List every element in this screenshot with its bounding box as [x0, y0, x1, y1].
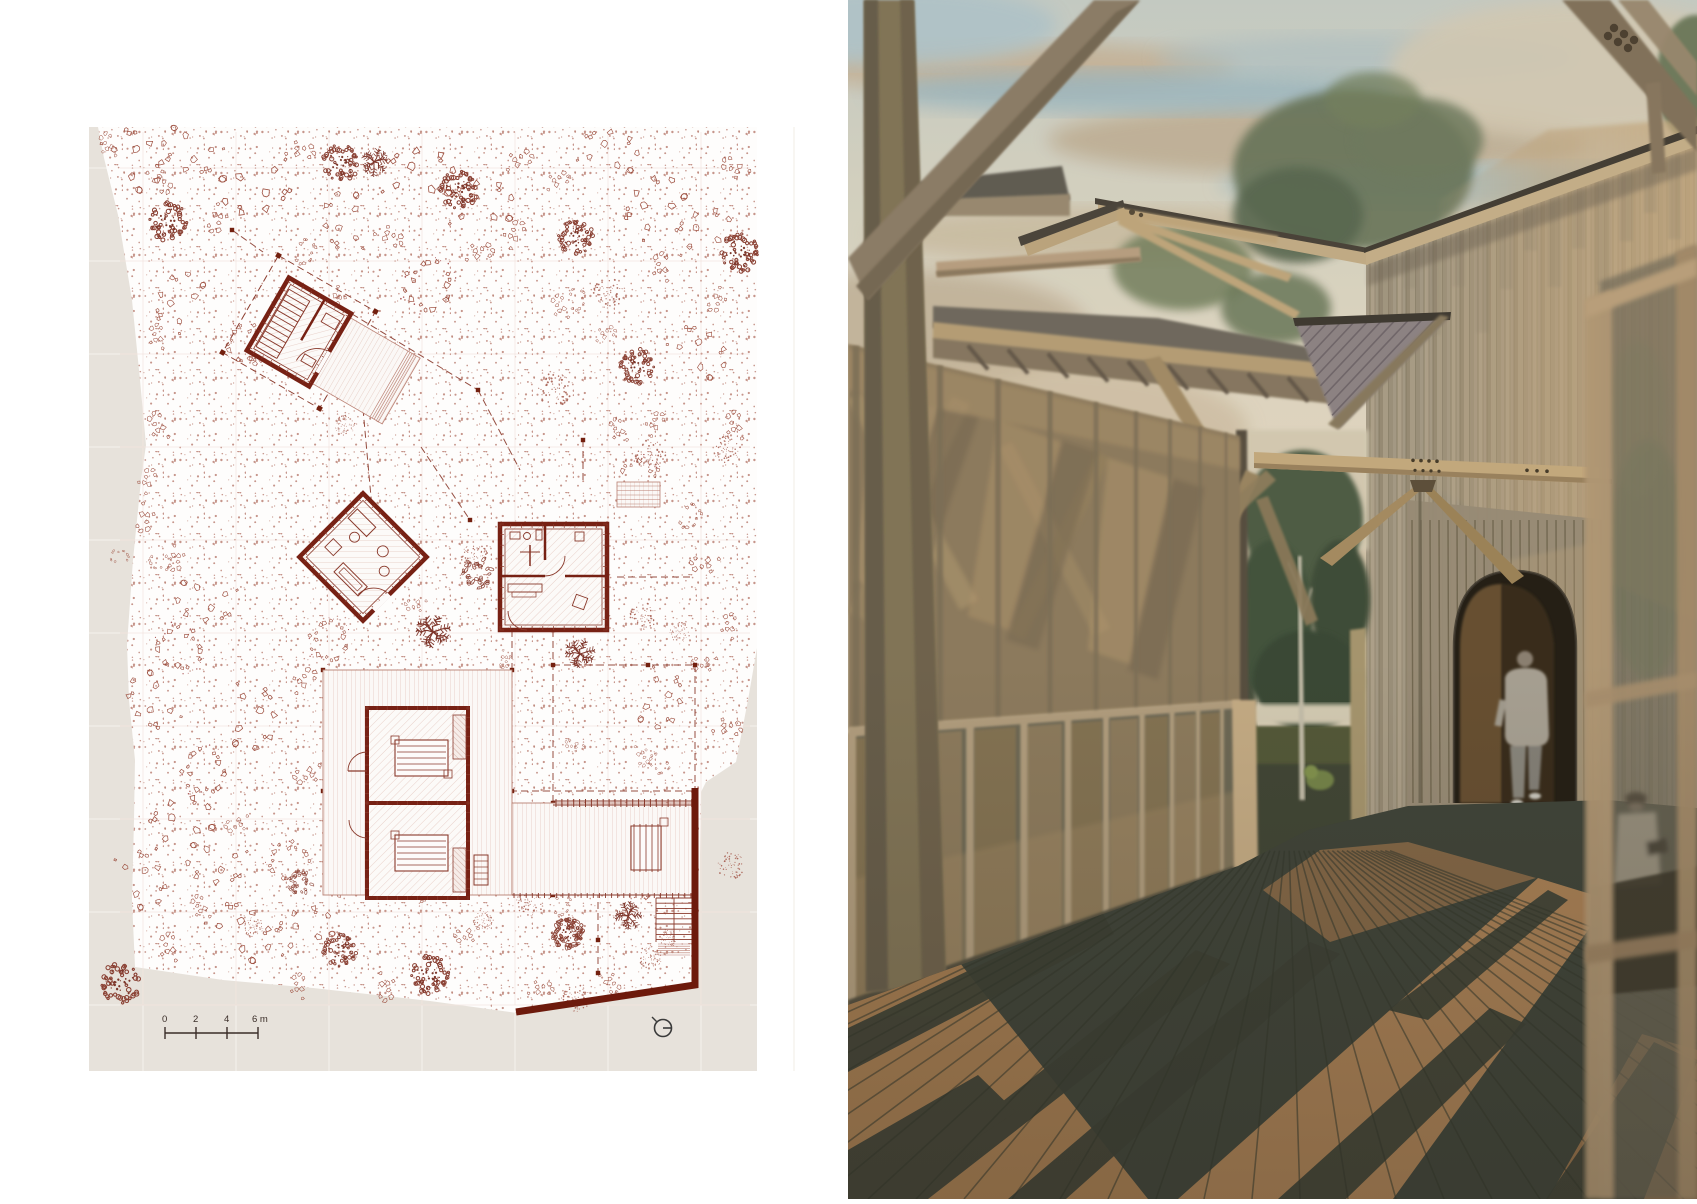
svg-text:6 m: 6 m	[252, 1014, 268, 1025]
svg-text:4: 4	[224, 1014, 229, 1025]
svg-text:2: 2	[193, 1014, 198, 1025]
svg-text:0: 0	[162, 1014, 167, 1025]
